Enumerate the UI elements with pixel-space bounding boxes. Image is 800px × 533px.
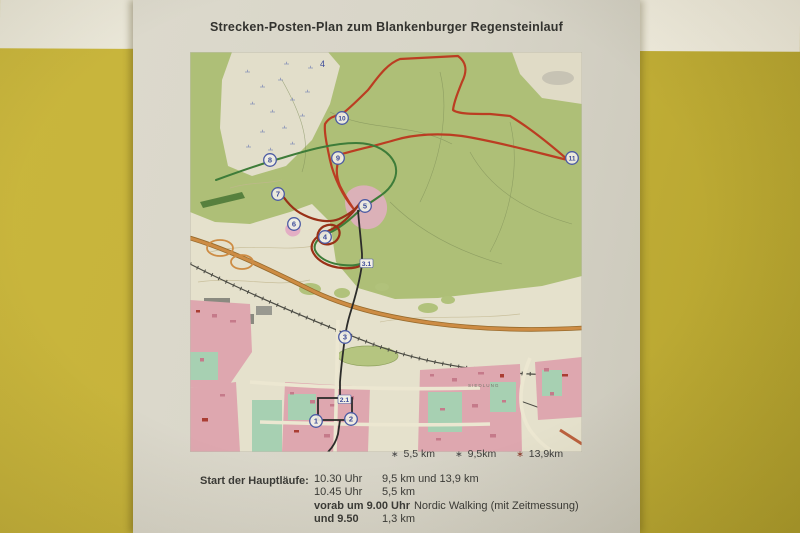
distance-detail: 1,3 km: [382, 513, 415, 526]
town-building: [544, 368, 549, 372]
town-building: [502, 400, 506, 403]
distance-detail: Nordic Walking (mit Zeitmessung): [414, 500, 579, 513]
photo-background: Strecken-Posten-Plan zum Blankenburger R…: [0, 0, 800, 533]
poster-title: Strecken-Posten-Plan zum Blankenburger R…: [133, 20, 640, 34]
checkpoint-number: 11: [569, 156, 576, 163]
town-building: [430, 374, 434, 377]
checkpoint-number: 2: [349, 415, 353, 424]
town-building: [550, 392, 554, 396]
town-building: [452, 378, 457, 382]
legend-label: 5,5 km: [404, 448, 436, 460]
town-building: [562, 374, 568, 377]
schedule-heading: Start der Hauptläufe:: [200, 475, 309, 487]
legend-label: 13,9km: [529, 448, 563, 460]
town-building: [478, 372, 484, 375]
legend-marker-icon: ∗: [391, 450, 399, 459]
town-building: [212, 314, 217, 318]
town-building: [472, 404, 478, 408]
start-time: 10.45 Uhr: [314, 486, 382, 499]
schedule-row: vorab um 9.00 UhrNordic Walking (mit Zei…: [314, 500, 620, 513]
checkpoint-number: 5: [363, 202, 367, 211]
grid-number-label: 4: [320, 59, 325, 69]
schedule-rows: 10.30 Uhr9,5 km und 13,9 km10.45 Uhr5,5 …: [314, 473, 620, 527]
waypoint-label: 3.1: [362, 261, 372, 268]
town-building: [196, 310, 200, 313]
start-time: vorab um 9.00 Uhr: [314, 500, 414, 513]
waypoint-label: 2.1: [340, 397, 350, 404]
town-building: [490, 434, 496, 438]
town-building: [500, 374, 504, 378]
town-building: [230, 320, 236, 323]
town-building: [220, 394, 225, 397]
distance-detail: 9,5 km und 13,9 km: [382, 473, 479, 486]
legend-marker-icon: ∗: [516, 450, 524, 459]
checkpoint-number: 10: [338, 116, 346, 123]
legend-item: ∗9,5km: [455, 448, 496, 460]
town-building: [440, 408, 445, 411]
town-building: [324, 434, 330, 438]
town-building: [294, 430, 299, 433]
schedule-row: und 9.501,3 km: [314, 513, 620, 526]
legend-marker-icon: ∗: [455, 450, 463, 459]
town-building: [310, 400, 315, 404]
checkpoint-number: 1: [314, 417, 318, 426]
checkpoint-number: 7: [276, 190, 280, 199]
checkpoint-number: 6: [292, 220, 296, 229]
town-building: [436, 438, 441, 441]
schedule-row: 10.45 Uhr5,5 km: [314, 486, 620, 499]
legend-item: ∗13,9km: [516, 448, 563, 460]
map-quarry: [542, 71, 574, 85]
town-building: [200, 358, 204, 362]
legend-item: ∗5,5 km: [391, 448, 435, 460]
schedule: Start der Hauptläufe: 10.30 Uhr9,5 km un…: [200, 473, 620, 527]
legend-label: 9,5km: [468, 448, 497, 460]
checkpoint-number: 3: [343, 333, 347, 342]
checkpoint-number: 8: [268, 156, 272, 165]
start-time: und 9.50: [314, 513, 382, 526]
siedlung-label: SIEDLUNG: [468, 383, 500, 388]
schedule-row: 10.30 Uhr9,5 km und 13,9 km: [314, 473, 620, 486]
town-building: [290, 392, 294, 395]
town-building: [202, 418, 208, 422]
legend: ∗5,5 km∗9,5km∗13,9km: [391, 448, 563, 460]
checkpoint-number: 9: [336, 154, 340, 163]
route-map: 4 SIEDLUNG 3.12.1 1234567891011: [190, 52, 582, 452]
map-svg: 4 SIEDLUNG 3.12.1 1234567891011: [190, 52, 582, 452]
distance-detail: 5,5 km: [382, 486, 415, 499]
start-time: 10.30 Uhr: [314, 473, 382, 486]
